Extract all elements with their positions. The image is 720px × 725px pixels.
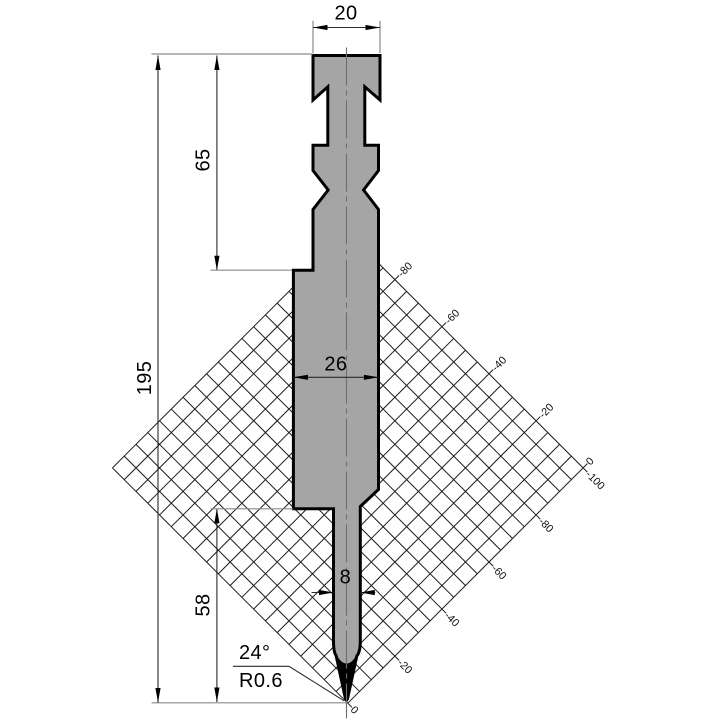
svg-text:195: 195 <box>134 361 156 396</box>
svg-text:24°: 24° <box>239 642 270 664</box>
svg-text:8: 8 <box>340 567 352 589</box>
svg-text:R0.6: R0.6 <box>239 670 283 692</box>
svg-text:26: 26 <box>324 354 347 376</box>
svg-text:20: 20 <box>334 3 357 25</box>
svg-text:65: 65 <box>193 148 215 171</box>
svg-text:58: 58 <box>193 593 215 616</box>
